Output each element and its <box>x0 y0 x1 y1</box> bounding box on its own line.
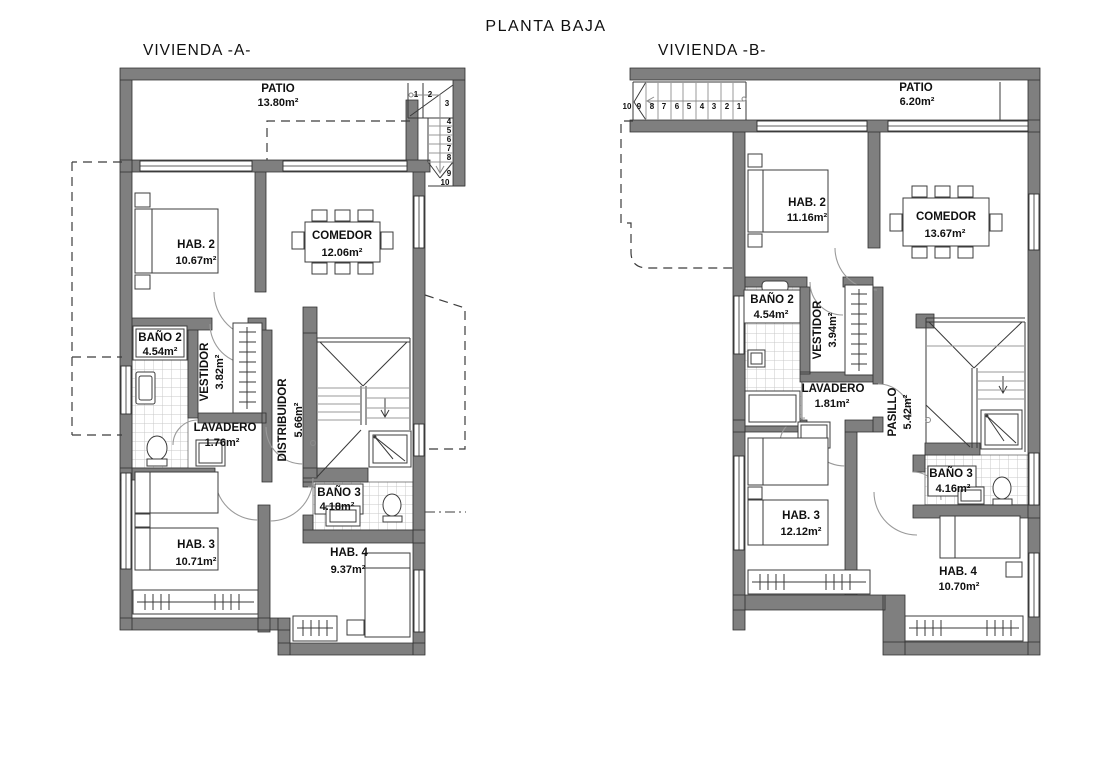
room-area: 1.81m² <box>815 398 850 410</box>
room-name: COMEDOR <box>312 230 373 242</box>
room-area: 4.54m² <box>143 346 178 358</box>
chair <box>312 263 327 274</box>
floor-plan: PLANTA BAJA VIVIENDA -A- <box>0 0 1113 763</box>
bed <box>748 438 828 485</box>
side-table <box>1006 562 1022 577</box>
room-area: 1.76m² <box>205 437 240 449</box>
chair <box>990 214 1002 231</box>
stair-numbers-b: 10 9 8 7 6 5 4 3 2 1 <box>623 102 742 111</box>
chair <box>935 186 950 197</box>
chair <box>381 232 393 249</box>
stair-step-number: 3 <box>712 102 717 111</box>
bed <box>748 500 828 545</box>
dashed-overhang-b <box>621 121 733 268</box>
stair-step-number: 10 <box>623 102 632 111</box>
stairwell-a <box>311 338 412 478</box>
room-area: 10.71m² <box>176 556 217 568</box>
room-name: HAB. 3 <box>782 510 820 522</box>
room-area: 10.67m² <box>176 255 217 267</box>
bed <box>135 472 218 513</box>
stair-step-number: 1 <box>737 102 742 111</box>
room-area: 10.70m² <box>939 581 980 593</box>
room-name: PASILLO <box>887 387 899 436</box>
room-name: COMEDOR <box>916 211 977 223</box>
stair-step-number: 5 <box>447 126 452 135</box>
furniture-b <box>744 154 1023 641</box>
toilet <box>993 477 1011 499</box>
room-name: LAVADERO <box>194 422 257 434</box>
room-name: HAB. 2 <box>177 239 215 251</box>
nightstand <box>748 154 762 167</box>
room-area: 12.12m² <box>781 526 822 538</box>
side-table <box>347 620 364 635</box>
stair-step-number: 5 <box>687 102 692 111</box>
room-area: 4.18m² <box>320 501 355 513</box>
nightstand <box>135 275 150 289</box>
chair <box>358 210 373 221</box>
bed <box>365 553 410 637</box>
nightstand <box>748 234 762 247</box>
nightstand <box>135 514 150 527</box>
room-name: VESTIDOR <box>812 300 824 359</box>
bed <box>940 516 1020 558</box>
room-area: 5.42m² <box>902 394 914 429</box>
chair <box>912 247 927 258</box>
room-name: BAÑO 2 <box>750 293 793 306</box>
walls-b <box>630 68 1040 655</box>
room-area: 13.80m² <box>258 97 299 109</box>
entry-staircase-b <box>633 82 1000 120</box>
stair-step-number: 9 <box>447 169 452 178</box>
chair <box>890 214 902 231</box>
room-name: HAB. 3 <box>177 539 215 551</box>
stair-step-number: 7 <box>662 102 667 111</box>
room-area: 11.16m² <box>787 212 828 224</box>
room-area: 4.54m² <box>754 309 789 321</box>
unit-b-label: VIVIENDA -B- <box>658 42 766 59</box>
chair <box>292 232 304 249</box>
stair-step-number: 4 <box>700 102 705 111</box>
toilet <box>383 494 401 516</box>
stairwell-b <box>926 318 1026 452</box>
stair-step-number: 1 <box>414 90 419 99</box>
stair-step-number: 10 <box>441 178 450 187</box>
nightstand <box>748 487 762 499</box>
stair-step-number: 7 <box>447 144 452 153</box>
nightstand <box>135 193 150 207</box>
room-name: LAVADERO <box>802 383 865 395</box>
room-area: 9.37m² <box>331 564 366 576</box>
chair <box>335 263 350 274</box>
page-title: PLANTA BAJA <box>485 18 606 35</box>
room-name: DISTRIBUIDOR <box>277 378 289 462</box>
room-name: HAB. 4 <box>330 547 368 559</box>
chair <box>358 263 373 274</box>
stair-step-number: 2 <box>428 90 433 99</box>
stair-step-number: 8 <box>650 102 655 111</box>
unit-a-label: VIVIENDA -A- <box>143 42 251 59</box>
chair <box>912 186 927 197</box>
room-name: HAB. 4 <box>939 566 977 578</box>
toilet <box>147 436 167 460</box>
chair <box>935 247 950 258</box>
room-area: 4.16m² <box>936 483 971 495</box>
room-name: BAÑO 3 <box>929 467 972 480</box>
room-area: 3.82m² <box>214 354 226 389</box>
vivienda-b: VIVIENDA -B- <box>621 42 1040 655</box>
stair-step-number: 9 <box>637 102 642 111</box>
room-name: PATIO <box>261 83 294 95</box>
stair-step-number: 6 <box>675 102 680 111</box>
room-name: HAB. 2 <box>788 197 826 209</box>
chair <box>312 210 327 221</box>
stair-step-number: 8 <box>447 153 452 162</box>
room-name: VESTIDOR <box>199 342 211 401</box>
room-area: 13.67m² <box>925 228 966 240</box>
room-name: BAÑO 3 <box>317 486 360 499</box>
stair-step-number: 4 <box>447 117 452 126</box>
chair <box>958 186 973 197</box>
room-name: BAÑO 2 <box>138 331 181 344</box>
stair-step-number: 2 <box>725 102 730 111</box>
stair-step-number: 6 <box>447 135 452 144</box>
chair <box>335 210 350 221</box>
room-area: 6.20m² <box>900 96 935 108</box>
room-area: 3.94m² <box>827 312 839 347</box>
vivienda-a: VIVIENDA -A- <box>72 42 466 655</box>
stair-step-number: 3 <box>445 99 450 108</box>
room-area: 5.66m² <box>293 402 305 437</box>
chair <box>958 247 973 258</box>
room-name: PATIO <box>899 82 932 94</box>
room-area: 12.06m² <box>322 247 363 259</box>
